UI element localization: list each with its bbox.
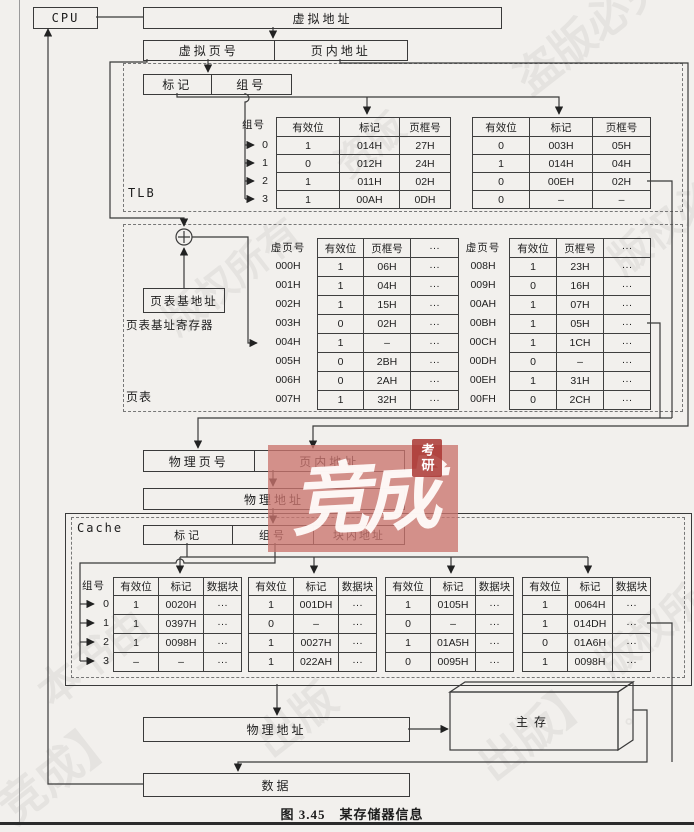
table-cell: ··· bbox=[339, 615, 377, 634]
table-header-cell: 有效位 bbox=[386, 578, 431, 596]
table-cell: ··· bbox=[604, 391, 651, 410]
table-cell: 0 bbox=[510, 391, 557, 410]
table-cell: – bbox=[159, 653, 204, 672]
table-cell: 00EH bbox=[530, 173, 593, 191]
page-table-base-box: 页表基地址 bbox=[143, 288, 225, 313]
cache-table-2-table: 有效位标记数据块10105H···0–···101A5H···00095H··· bbox=[385, 577, 514, 672]
cache-table-0: 有效位标记数据块10020H···10397H···10098H···––··· bbox=[113, 577, 242, 672]
table-cell: – bbox=[431, 615, 476, 634]
table-cell: 1 bbox=[249, 596, 294, 615]
table-cell: 1 bbox=[510, 334, 557, 353]
page-table-base-register-label: 页表基址寄存器 bbox=[126, 317, 266, 333]
list-item: 006H bbox=[264, 371, 312, 390]
list-item: 2 bbox=[257, 172, 273, 190]
table-cell: 014DH bbox=[568, 615, 613, 634]
tlb-set-col-header: 组号 bbox=[242, 117, 265, 132]
table-cell: 24H bbox=[400, 155, 451, 173]
table-cell: 07H bbox=[557, 296, 604, 315]
table-cell: – bbox=[364, 334, 411, 353]
table-cell: 2CH bbox=[557, 391, 604, 410]
data-box: 数据 bbox=[143, 773, 410, 797]
list-item: 00EH bbox=[459, 371, 507, 390]
table-cell: 0 bbox=[318, 353, 364, 372]
list-item: 007H bbox=[264, 390, 312, 409]
table-cell: 1 bbox=[510, 296, 557, 315]
table-cell: 23H bbox=[557, 258, 604, 277]
table-cell: ··· bbox=[604, 258, 651, 277]
table-cell: 1 bbox=[510, 258, 557, 277]
pt-right-table: 有效位页框号···123H···016H···107H···105H···11C… bbox=[509, 238, 651, 410]
table-cell: ··· bbox=[613, 653, 651, 672]
table-cell: 05H bbox=[557, 315, 604, 334]
table-cell: 1 bbox=[386, 634, 431, 653]
cache-table-1: 有效位标记数据块1001DH···0–···10027H···1022AH··· bbox=[248, 577, 377, 672]
table-cell: 0 bbox=[473, 191, 530, 209]
list-item: 1 bbox=[98, 614, 114, 633]
table-cell: 1 bbox=[249, 634, 294, 653]
pt-left-vpn-labels: 000H001H002H003H004H005H006H007H bbox=[264, 257, 312, 409]
table-cell: 0 bbox=[510, 353, 557, 372]
table-header-cell: 有效位 bbox=[249, 578, 294, 596]
table-cell: 003H bbox=[530, 137, 593, 155]
table-cell: ··· bbox=[204, 596, 242, 615]
cache-table-3-table: 有效位标记数据块10064H···1014DH···001A6H···10098… bbox=[522, 577, 651, 672]
table-cell: 0095H bbox=[431, 653, 476, 672]
page-table-region-label: 页表 bbox=[126, 388, 152, 405]
physical-address-label-2: 物理地址 bbox=[246, 721, 306, 738]
pt-right-vpn-labels: 008H009H00AH00BH00CH00DH00EH00FH bbox=[459, 257, 507, 409]
list-item: 0 bbox=[257, 136, 273, 154]
list-item: 2 bbox=[98, 633, 114, 652]
table-cell: 32H bbox=[364, 391, 411, 410]
list-item: 3 bbox=[257, 190, 273, 208]
table-header-cell: 页框号 bbox=[557, 239, 604, 258]
table-cell: 1CH bbox=[557, 334, 604, 353]
table-cell: – bbox=[593, 191, 651, 209]
table-cell: 1 bbox=[277, 191, 340, 209]
table-header-cell: 标记 bbox=[530, 118, 593, 137]
table-cell: 1 bbox=[510, 372, 557, 391]
table-cell: ··· bbox=[411, 277, 459, 296]
table-cell: ··· bbox=[476, 653, 514, 672]
table-header-cell: 有效位 bbox=[510, 239, 557, 258]
table-cell: 0 bbox=[318, 315, 364, 334]
red-watermark-seal: 考研 bbox=[412, 439, 442, 477]
table-cell: 0 bbox=[249, 615, 294, 634]
table-cell: ··· bbox=[339, 653, 377, 672]
virtual-page-no-field: 虚拟页号 bbox=[144, 41, 274, 60]
list-item: 1 bbox=[257, 154, 273, 172]
tlb-tag-set-box: 标记 组号 bbox=[143, 74, 292, 95]
table-cell: 02H bbox=[593, 173, 651, 191]
table-cell: 022AH bbox=[294, 653, 339, 672]
cache-row-labels: 0123 bbox=[98, 595, 114, 671]
list-item: 004H bbox=[264, 333, 312, 352]
table-cell: ··· bbox=[339, 634, 377, 653]
list-item: 00FH bbox=[459, 390, 507, 409]
tlb-right: 有效位标记页框号0003H05H1014H04H000EH02H0–– bbox=[472, 117, 651, 209]
table-cell: ··· bbox=[604, 334, 651, 353]
table-cell: ··· bbox=[613, 596, 651, 615]
table-cell: 0098H bbox=[568, 653, 613, 672]
table-cell: – bbox=[294, 615, 339, 634]
table-cell: 001DH bbox=[294, 596, 339, 615]
table-cell: 0020H bbox=[159, 596, 204, 615]
pt-left-table: 有效位页框号···106H···104H···115H···002H···1–·… bbox=[317, 238, 459, 410]
table-cell: 0 bbox=[473, 173, 530, 191]
table-header-cell: 标记 bbox=[294, 578, 339, 596]
table-header-cell: 有效位 bbox=[473, 118, 530, 137]
tlb-row-labels: 0123 bbox=[257, 136, 273, 208]
cache-table-2: 有效位标记数据块10105H···0–···101A5H···00095H··· bbox=[385, 577, 514, 672]
cache-region-label: Cache bbox=[77, 521, 123, 535]
cache-set-col-header: 组号 bbox=[82, 578, 105, 593]
table-cell: 014H bbox=[530, 155, 593, 173]
list-item: 009H bbox=[459, 276, 507, 295]
table-cell: 01A5H bbox=[431, 634, 476, 653]
list-item: 003H bbox=[264, 314, 312, 333]
tlb-tag-field: 标记 bbox=[144, 75, 211, 94]
table-cell: 00AH bbox=[340, 191, 400, 209]
table-cell: ··· bbox=[604, 353, 651, 372]
table-cell: 15H bbox=[364, 296, 411, 315]
table-header-cell: 页框号 bbox=[364, 239, 411, 258]
table-cell: ··· bbox=[411, 372, 459, 391]
list-item: 00CH bbox=[459, 333, 507, 352]
table-cell: 1 bbox=[386, 596, 431, 615]
list-item: 00AH bbox=[459, 295, 507, 314]
table-cell: 012H bbox=[340, 155, 400, 173]
table-cell: 27H bbox=[400, 137, 451, 155]
table-cell: ··· bbox=[204, 634, 242, 653]
table-cell: ··· bbox=[613, 634, 651, 653]
table-cell: 02H bbox=[364, 315, 411, 334]
table-cell: ··· bbox=[476, 634, 514, 653]
table-cell: ··· bbox=[411, 258, 459, 277]
physical-address-box-2: 物理地址 bbox=[143, 717, 410, 742]
table-cell: 1 bbox=[249, 653, 294, 672]
table-cell: ··· bbox=[604, 315, 651, 334]
table-cell: ··· bbox=[411, 296, 459, 315]
table-cell: ··· bbox=[339, 596, 377, 615]
pt-left-vpn-header: 虚页号 bbox=[264, 240, 312, 255]
data-label: 数据 bbox=[261, 777, 291, 794]
table-cell: 0064H bbox=[568, 596, 613, 615]
list-item: 0 bbox=[98, 595, 114, 614]
memory-hierarchy-diagram: 盗版必究版权必究版权所有资版本书由竞成】出版出版】版权所。 CPU 虚拟地址 虚… bbox=[0, 0, 694, 832]
main-memory-label: 主存 bbox=[450, 692, 618, 750]
table-header-cell: 数据块 bbox=[204, 578, 242, 596]
table-cell: 06H bbox=[364, 258, 411, 277]
virtual-address-label: 虚拟地址 bbox=[292, 10, 352, 27]
cache-tag-field: 标记 bbox=[144, 526, 232, 544]
table-cell: 1 bbox=[318, 277, 364, 296]
table-header-cell: 数据块 bbox=[476, 578, 514, 596]
table-header-cell: 有效位 bbox=[318, 239, 364, 258]
table-cell: 04H bbox=[364, 277, 411, 296]
table-cell: 2BH bbox=[364, 353, 411, 372]
table-cell: 01A6H bbox=[568, 634, 613, 653]
table-cell: ··· bbox=[411, 353, 459, 372]
table-cell: ··· bbox=[604, 296, 651, 315]
table-cell: ··· bbox=[476, 596, 514, 615]
table-header-cell: 数据块 bbox=[339, 578, 377, 596]
table-header-cell: 页框号 bbox=[400, 118, 451, 137]
table-cell: ··· bbox=[204, 653, 242, 672]
virtual-address-box: 虚拟地址 bbox=[143, 7, 502, 29]
table-cell: 0 bbox=[386, 653, 431, 672]
list-item: 002H bbox=[264, 295, 312, 314]
list-item: 3 bbox=[98, 652, 114, 671]
table-header-cell: ··· bbox=[411, 239, 459, 258]
table-cell: 011H bbox=[340, 173, 400, 191]
pt-right: 有效位页框号···123H···016H···107H···105H···11C… bbox=[509, 238, 651, 410]
table-header-cell: 有效位 bbox=[523, 578, 568, 596]
list-item: 001H bbox=[264, 276, 312, 295]
table-cell: 0 bbox=[510, 277, 557, 296]
page-left-rule bbox=[19, 0, 20, 822]
table-cell: 0397H bbox=[159, 615, 204, 634]
page-bottom-rule bbox=[0, 822, 694, 825]
cpu-box: CPU bbox=[33, 7, 98, 29]
table-cell: 1 bbox=[114, 596, 159, 615]
table-cell: 1 bbox=[114, 615, 159, 634]
table-header-cell: 标记 bbox=[340, 118, 400, 137]
table-cell: 1 bbox=[277, 137, 340, 155]
pt-left: 有效位页框号···106H···104H···115H···002H···1–·… bbox=[317, 238, 459, 410]
table-cell: 02H bbox=[400, 173, 451, 191]
tlb-left: 有效位标记页框号1014H27H0012H24H1011H02H100AH0DH bbox=[276, 117, 451, 209]
table-cell: 0105H bbox=[431, 596, 476, 615]
table-cell: 1 bbox=[473, 155, 530, 173]
table-cell: 0 bbox=[523, 634, 568, 653]
table-cell: 014H bbox=[340, 137, 400, 155]
table-cell: ··· bbox=[613, 615, 651, 634]
table-cell: 0 bbox=[318, 372, 364, 391]
table-header-cell: 数据块 bbox=[613, 578, 651, 596]
table-header-cell: 标记 bbox=[159, 578, 204, 596]
table-cell: 1 bbox=[318, 334, 364, 353]
cache-table-1-table: 有效位标记数据块1001DH···0–···10027H···1022AH··· bbox=[248, 577, 377, 672]
table-cell: ··· bbox=[204, 615, 242, 634]
list-item: 008H bbox=[459, 257, 507, 276]
table-cell: 31H bbox=[557, 372, 604, 391]
page-offset-field: 页内地址 bbox=[274, 41, 408, 60]
table-cell: 05H bbox=[593, 137, 651, 155]
table-cell: 1 bbox=[318, 296, 364, 315]
table-cell: ··· bbox=[604, 372, 651, 391]
table-cell: ··· bbox=[411, 391, 459, 410]
watermark-text: 。 bbox=[625, 700, 645, 729]
table-cell: 0098H bbox=[159, 634, 204, 653]
list-item: 00DH bbox=[459, 352, 507, 371]
virtual-split-box: 虚拟页号 页内地址 bbox=[143, 40, 408, 61]
table-cell: 0 bbox=[473, 137, 530, 155]
table-cell: – bbox=[557, 353, 604, 372]
table-cell: 0DH bbox=[400, 191, 451, 209]
table-cell: 2AH bbox=[364, 372, 411, 391]
pt-right-vpn-header: 虚页号 bbox=[459, 240, 507, 255]
table-cell: 0 bbox=[386, 615, 431, 634]
list-item: 005H bbox=[264, 352, 312, 371]
table-cell: 16H bbox=[557, 277, 604, 296]
table-cell: – bbox=[114, 653, 159, 672]
table-cell: 1 bbox=[510, 315, 557, 334]
table-cell: 1 bbox=[523, 653, 568, 672]
table-cell: ··· bbox=[411, 315, 459, 334]
table-header-cell: ··· bbox=[604, 239, 651, 258]
table-cell: 0 bbox=[277, 155, 340, 173]
table-cell: ··· bbox=[604, 277, 651, 296]
tlb-region-label: TLB bbox=[128, 186, 156, 200]
table-cell: 04H bbox=[593, 155, 651, 173]
cpu-label: CPU bbox=[52, 11, 80, 25]
table-header-cell: 标记 bbox=[568, 578, 613, 596]
table-header-cell: 有效位 bbox=[114, 578, 159, 596]
cache-table-0-table: 有效位标记数据块10020H···10397H···10098H···––··· bbox=[113, 577, 242, 672]
table-cell: 1 bbox=[114, 634, 159, 653]
table-header-cell: 有效位 bbox=[277, 118, 340, 137]
figure-caption: 图 3.45 某存储器信息 bbox=[222, 804, 482, 823]
list-item: 00BH bbox=[459, 314, 507, 333]
table-cell: – bbox=[530, 191, 593, 209]
page-table-base-label: 页表基地址 bbox=[150, 293, 218, 309]
table-cell: 1 bbox=[318, 258, 364, 277]
table-cell: ··· bbox=[476, 615, 514, 634]
table-header-cell: 标记 bbox=[431, 578, 476, 596]
table-cell: 1 bbox=[523, 615, 568, 634]
table-cell: 1 bbox=[277, 173, 340, 191]
cache-table-3: 有效位标记数据块10064H···1014DH···001A6H···10098… bbox=[522, 577, 651, 672]
tlb-left-table: 有效位标记页框号1014H27H0012H24H1011H02H100AH0DH bbox=[276, 117, 451, 209]
table-cell: 1 bbox=[318, 391, 364, 410]
list-item: 000H bbox=[264, 257, 312, 276]
table-cell: 1 bbox=[523, 596, 568, 615]
tlb-right-table: 有效位标记页框号0003H05H1014H04H000EH02H0–– bbox=[472, 117, 651, 209]
table-cell: 0027H bbox=[294, 634, 339, 653]
table-header-cell: 页框号 bbox=[593, 118, 651, 137]
physical-page-no-field: 物理页号 bbox=[144, 451, 254, 471]
table-cell: ··· bbox=[411, 334, 459, 353]
tlb-set-field: 组号 bbox=[211, 75, 291, 94]
